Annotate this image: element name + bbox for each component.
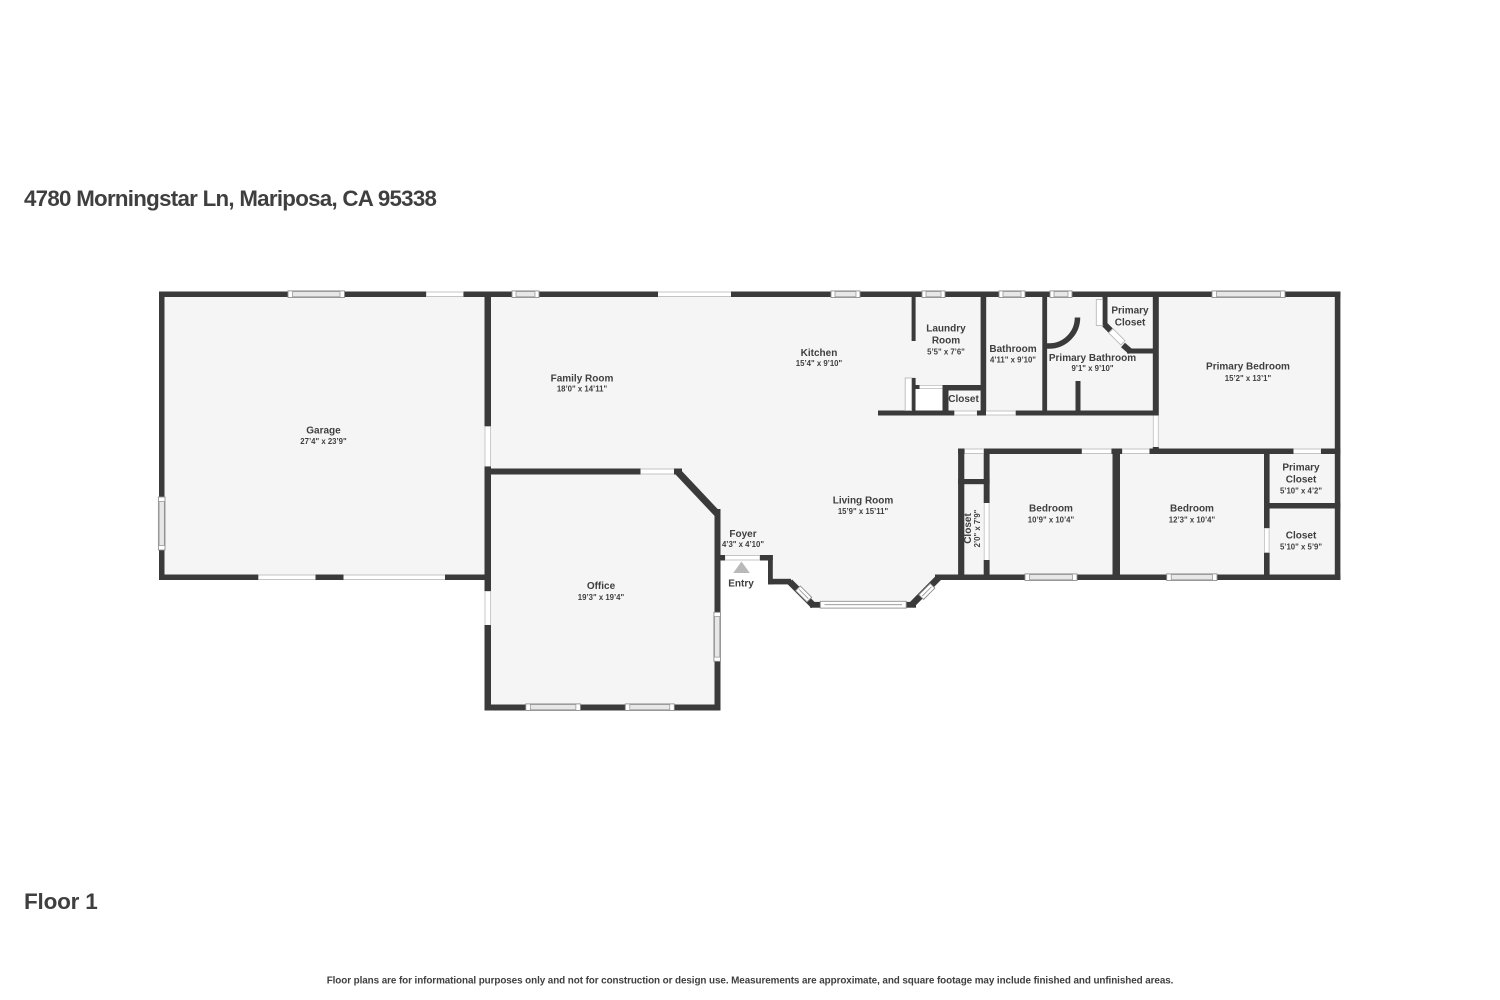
svg-text:27’4" x 23’9": 27’4" x 23’9" bbox=[300, 437, 347, 446]
svg-text:10’9" x 10’4": 10’9" x 10’4" bbox=[1028, 516, 1075, 525]
svg-text:Family Room: Family Room bbox=[551, 374, 614, 385]
svg-text:Primary: Primary bbox=[1111, 306, 1149, 317]
svg-text:5’5" x 7’6": 5’5" x 7’6" bbox=[927, 348, 965, 357]
svg-text:5’10" x 5’9": 5’10" x 5’9" bbox=[1280, 543, 1322, 552]
svg-text:Closet: Closet bbox=[1115, 318, 1146, 329]
svg-text:Bedroom: Bedroom bbox=[1029, 504, 1073, 515]
svg-text:15’2" x 13’1": 15’2" x 13’1" bbox=[1225, 374, 1272, 383]
svg-text:Closet: Closet bbox=[1286, 475, 1317, 486]
svg-text:Living Room: Living Room bbox=[833, 496, 894, 507]
svg-text:Garage: Garage bbox=[306, 426, 341, 437]
svg-text:Bedroom: Bedroom bbox=[1170, 504, 1214, 515]
svg-text:4’11" x 9’10": 4’11" x 9’10" bbox=[990, 356, 1036, 365]
svg-text:Closet: Closet bbox=[948, 394, 979, 405]
svg-text:4780 Morningstar Ln, Mariposa,: 4780 Morningstar Ln, Mariposa, CA 95338 bbox=[24, 186, 437, 211]
svg-text:Primary: Primary bbox=[1282, 463, 1320, 474]
svg-text:Office: Office bbox=[587, 581, 616, 592]
svg-text:Closet: Closet bbox=[1286, 531, 1317, 542]
svg-text:18’0" x 14’11": 18’0" x 14’11" bbox=[557, 385, 608, 394]
svg-text:Foyer: Foyer bbox=[729, 529, 756, 540]
svg-text:Laundry: Laundry bbox=[926, 324, 966, 335]
svg-text:9’1" x 9’10": 9’1" x 9’10" bbox=[1071, 364, 1113, 373]
svg-text:2’0" x 7’9": 2’0" x 7’9" bbox=[973, 509, 982, 547]
svg-text:15’9" x 15’11": 15’9" x 15’11" bbox=[838, 507, 889, 516]
svg-text:15’4" x 9’10": 15’4" x 9’10" bbox=[796, 359, 843, 368]
svg-text:Floor plans are for informatio: Floor plans are for informational purpos… bbox=[327, 976, 1174, 987]
svg-text:5’10" x 4’2": 5’10" x 4’2" bbox=[1280, 487, 1322, 496]
svg-text:12’3" x 10’4": 12’3" x 10’4" bbox=[1169, 516, 1216, 525]
svg-text:Bathroom: Bathroom bbox=[989, 344, 1036, 355]
svg-text:Primary Bathroom: Primary Bathroom bbox=[1049, 353, 1136, 364]
svg-text:Kitchen: Kitchen bbox=[801, 348, 838, 359]
svg-text:Entry: Entry bbox=[728, 579, 754, 590]
svg-text:Floor 1: Floor 1 bbox=[24, 889, 98, 914]
svg-text:19’3" x 19’4": 19’3" x 19’4" bbox=[578, 593, 625, 602]
svg-text:Room: Room bbox=[932, 336, 960, 347]
svg-text:4’3" x 4’10": 4’3" x 4’10" bbox=[722, 540, 764, 549]
svg-text:Primary Bedroom: Primary Bedroom bbox=[1206, 362, 1290, 373]
